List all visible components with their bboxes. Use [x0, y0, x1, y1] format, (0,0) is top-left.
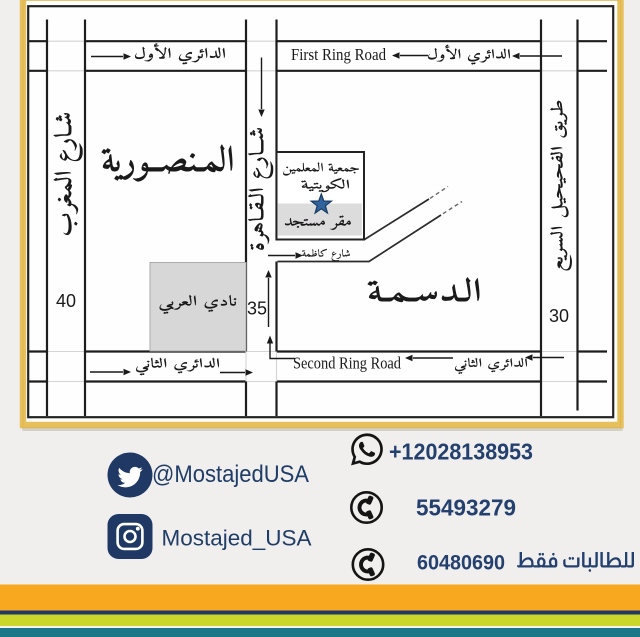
svg-text:55493279: 55493279 — [416, 495, 516, 521]
svg-text:60480690: 60480690 — [417, 551, 505, 575]
svg-text:+12028138953: +12028138953 — [389, 439, 533, 465]
svg-text:Mostajed_USA: Mostajed_USA — [162, 526, 312, 551]
svg-text:Second Ring Road: Second Ring Road — [293, 354, 401, 373]
svg-text:30: 30 — [549, 306, 569, 326]
svg-text:@MostajedUSA: @MostajedUSA — [152, 461, 310, 488]
svg-text:35: 35 — [247, 299, 267, 319]
svg-text:First Ring Road: First Ring Road — [291, 45, 386, 64]
svg-text:40: 40 — [56, 291, 76, 311]
